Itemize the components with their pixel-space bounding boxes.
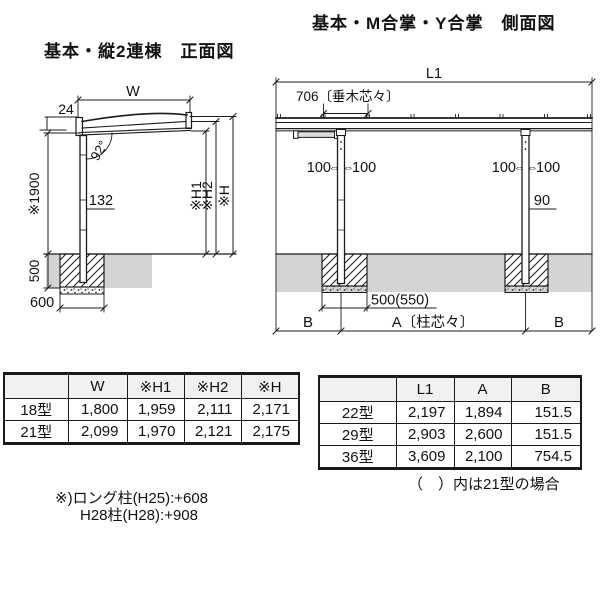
dim-706-label: 706〔垂木芯々〕 [296, 89, 400, 104]
dim-found-label: 500(550) [371, 293, 429, 309]
dim-1900-label: ※1900 [26, 172, 42, 215]
cell: 2,171 [241, 399, 299, 421]
dim-100-label: 100 [492, 160, 516, 176]
dim-b-right-label: B [554, 314, 564, 331]
drawing-sheet: 基本・縦2連棟 正面図 基本・M合掌・Y合掌 側面図 [0, 0, 600, 600]
cell: 2,197 [396, 402, 454, 424]
dim-h-label: ※H [216, 185, 232, 207]
dim-100-label: 100 [536, 160, 560, 176]
row-label: 29型 [319, 424, 396, 446]
cell: 151.5 [511, 424, 581, 446]
header-cell: L1 [396, 377, 454, 402]
table-header-row: W ※H1 ※H2 ※H [4, 374, 299, 399]
dim-24-label: 24 [58, 101, 74, 117]
dim-w-label: W [126, 84, 140, 100]
angle-label: 92° [87, 138, 111, 163]
support-arm-cap [294, 131, 299, 139]
cell: 2,600 [454, 424, 511, 446]
cell: 1,894 [454, 402, 511, 424]
dim-h2-label: ※H2 [199, 181, 215, 211]
table-header-row: L1 A B [319, 377, 581, 402]
cell: 1,959 [127, 399, 184, 421]
header-cell: ※H1 [127, 374, 184, 399]
note-h28-post: H28柱(H28):+908 [80, 504, 198, 525]
cell: 2,175 [241, 421, 299, 444]
gravel-strip [322, 286, 367, 293]
cell: 3,609 [396, 446, 454, 469]
front-view-diagram: 92° W 24 ※1900 132 [26, 84, 236, 312]
cell: 2,111 [184, 399, 241, 421]
post-left-connector [337, 130, 346, 136]
ground-fill [104, 254, 152, 288]
post-right [522, 131, 529, 284]
cell: 151.5 [511, 402, 581, 424]
dim-100-label: 100 [307, 160, 331, 176]
dim-600-label: 600 [30, 295, 54, 311]
table-row: 21型 2,099 1,970 2,121 2,175 [4, 421, 299, 444]
header-cell: W [68, 374, 127, 399]
dim-l1-label: L1 [426, 66, 442, 82]
cell: 1,800 [68, 399, 127, 421]
gravel-strip [60, 287, 104, 294]
cell: 2,100 [454, 446, 511, 469]
cell: 1,970 [127, 421, 184, 444]
gravel-strip [505, 286, 548, 293]
row-label: 22型 [319, 402, 396, 424]
header-cell: ※H2 [184, 374, 241, 399]
table-row: 29型 2,903 2,600 151.5 [319, 424, 581, 446]
dim-90-label: 90 [534, 193, 550, 209]
row-label: 21型 [4, 421, 68, 444]
post-left [338, 131, 345, 284]
cell: 2,099 [68, 421, 127, 444]
header-cell: B [511, 377, 581, 402]
cell: 2,121 [184, 421, 241, 444]
header-cell: ※H [241, 374, 299, 399]
table-row: 36型 3,609 2,100 754.5 [319, 446, 581, 469]
post-right-connector [521, 130, 530, 136]
header-cell: A [454, 377, 511, 402]
header-cell [319, 377, 396, 402]
dim-a-label: A〔柱芯々〕 [392, 314, 474, 331]
table-row: 18型 1,800 1,959 2,111 2,171 [4, 399, 299, 421]
row-label: 36型 [319, 446, 396, 469]
left-right-arrow-icon: ⇔ [329, 162, 340, 174]
front-dimensions-table: W ※H1 ※H2 ※H 18型 1,800 1,959 2,111 2,171… [3, 372, 300, 445]
header-cell [4, 374, 68, 399]
cell: 2,903 [396, 424, 454, 446]
cell: 754.5 [511, 446, 581, 469]
row-label: 18型 [4, 399, 68, 421]
side-view-diagram: L1 706〔垂木芯々〕 100 ⇔ ⇔ 100 100 ⇔ ⇔ 100 90 [273, 66, 595, 334]
dim-100-label: 100 [352, 160, 376, 176]
roof-arch [82, 113, 187, 121]
dim-132-label: 132 [89, 193, 113, 209]
side-dimensions-table: L1 A B 22型 2,197 1,894 151.5 29型 2,903 2… [318, 375, 582, 470]
dim-b-left-label: B [303, 314, 313, 331]
dim-500-label: 500 [27, 260, 42, 283]
support-arm [295, 132, 339, 138]
table-row: 22型 2,197 1,894 151.5 [319, 402, 581, 424]
left-right-arrow-icon: ⇔ [514, 162, 525, 174]
post-front [80, 136, 87, 283]
note-paren-21: （ ）内は21型の場合 [408, 473, 560, 494]
